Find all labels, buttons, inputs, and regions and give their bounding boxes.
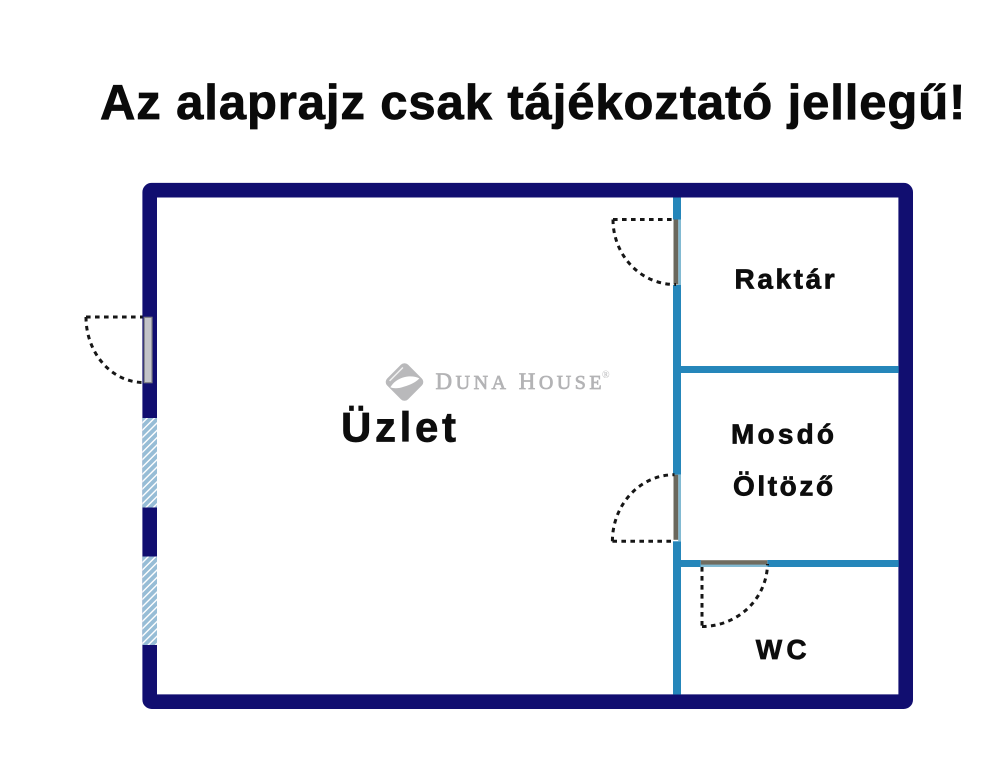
svg-text:®: ® <box>602 370 610 381</box>
svg-text:Mosdó: Mosdó <box>731 419 837 450</box>
svg-text:Az alaprajz csak tájékoztató j: Az alaprajz csak tájékoztató jellegű! <box>100 76 966 130</box>
svg-text:Üzlet: Üzlet <box>341 404 460 451</box>
svg-text:Öltöző: Öltöző <box>733 471 836 502</box>
svg-text:WC: WC <box>756 634 811 665</box>
svg-text:Raktár: Raktár <box>735 264 838 295</box>
svg-text:DUNA HOUSE: DUNA HOUSE <box>436 369 606 394</box>
